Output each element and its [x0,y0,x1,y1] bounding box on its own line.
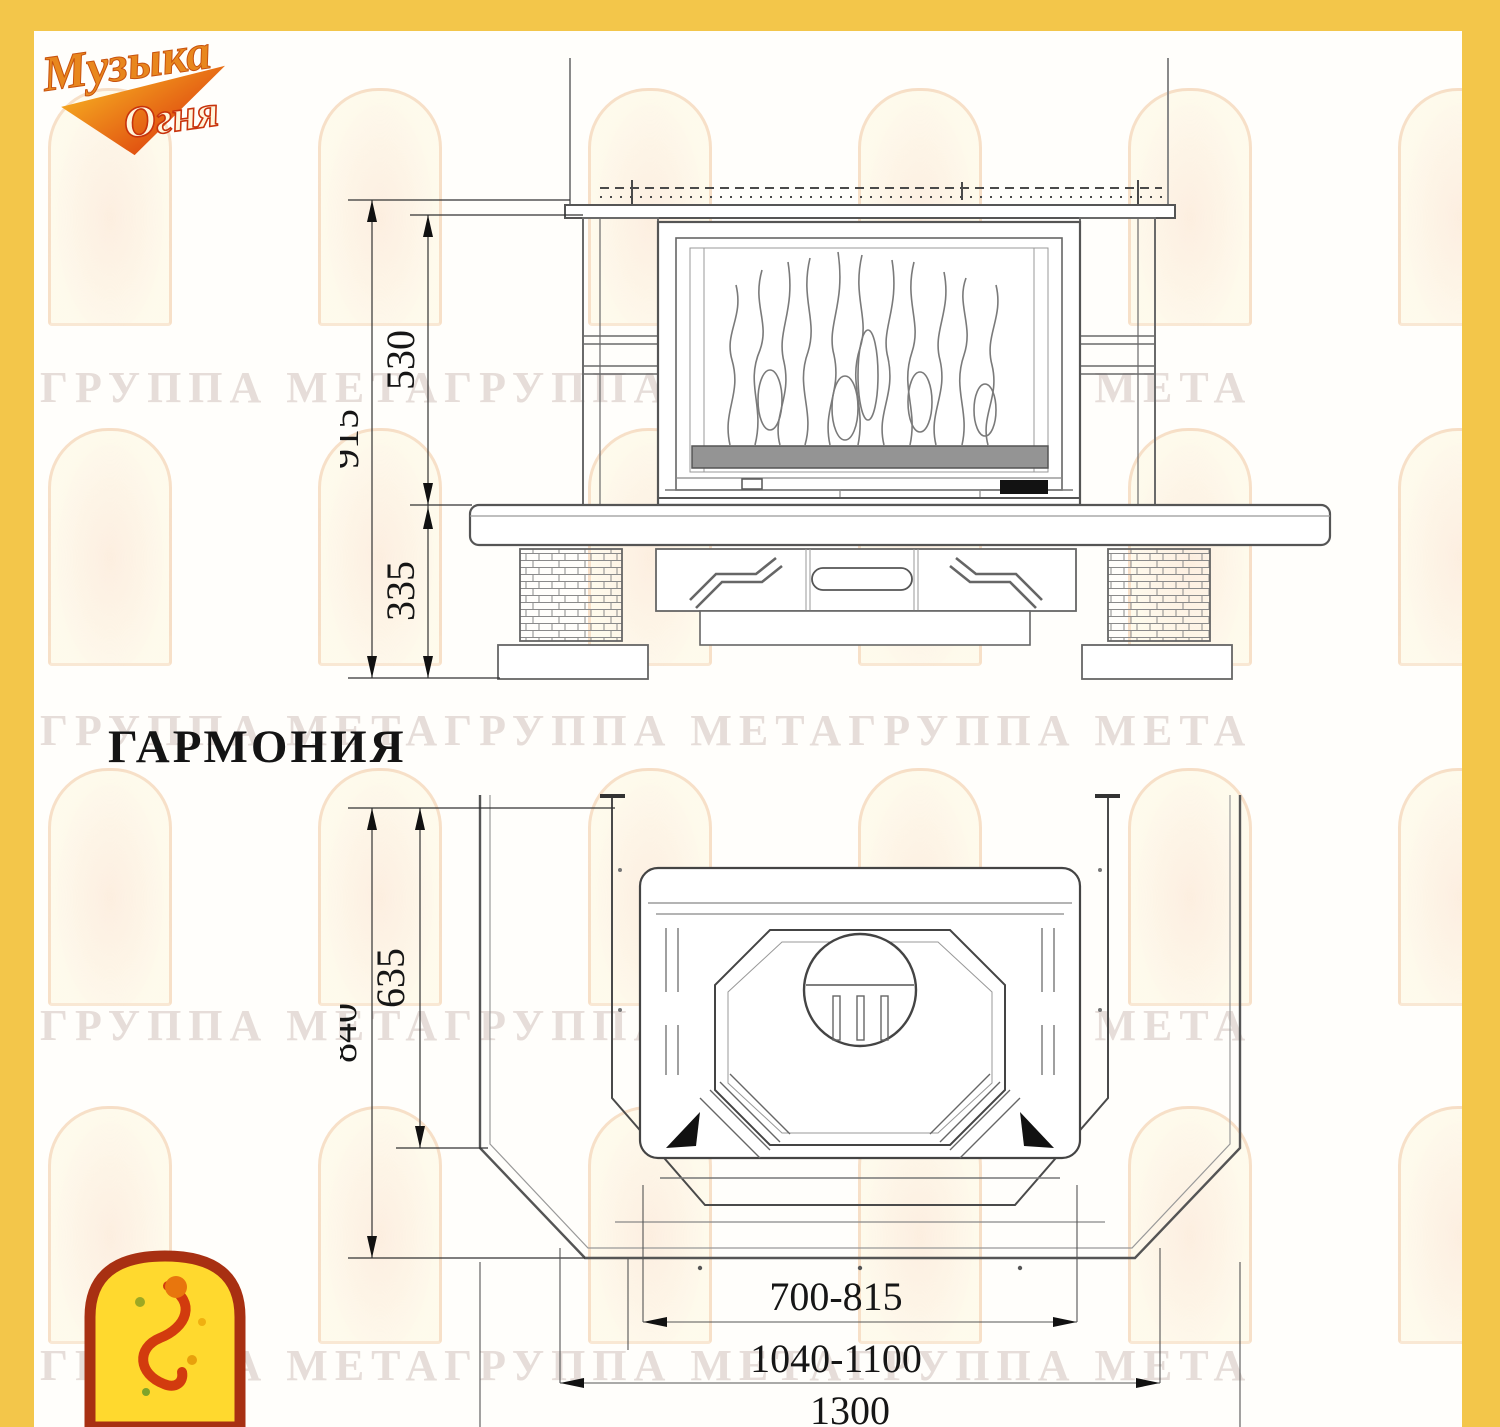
hearth-band [692,446,1048,468]
brick-block-right [1108,549,1210,641]
main-shelf [470,505,1330,545]
model-title: ГАРМОНИЯ [108,720,407,774]
dim-inner-depth: 635 [368,948,413,1008]
flue-collar-icon [804,934,916,1046]
mantel-shelf [565,205,1175,218]
dim-opening-width: 700-815 [769,1274,902,1319]
emblem-arch-icon [90,1256,240,1427]
left-yellow-bar [0,0,34,1427]
mantel-dashed-line [600,180,1162,204]
base-recess [700,611,1030,645]
watermark-arch [48,428,172,666]
watermark-arch [48,768,172,1006]
plinth-right [1082,645,1232,679]
dim-front-width: 1040-1100 [750,1336,922,1381]
plan-view-drawing: 840 635 700-815 1040-1100 1300 [340,780,1440,1427]
brick-block-left [520,549,622,641]
dim-total-width: 1300 [810,1388,890,1427]
right-pilaster [1080,218,1155,505]
chimney-breast [570,58,1168,205]
plan-width-dimensions: 700-815 1040-1100 1300 [480,1185,1240,1427]
base-center-slot [812,568,912,590]
dim-total-height: 915 [340,409,367,469]
plan-stove [640,868,1080,1178]
dim-total-depth: 840 [340,1003,365,1063]
left-pilaster [583,218,658,505]
firebox [658,222,1080,505]
plinth-left [498,645,648,679]
door-handle [1000,480,1048,494]
dim-base-height: 335 [378,561,423,621]
right-yellow-bar [1462,0,1500,1427]
base-section [498,549,1232,679]
drawing-sheet: ГРУППА МЕТАГРУППА МЕТАГРУППА МЕТА ГРУППА… [0,0,1500,1427]
brand-logo: Музыка Огня [28,12,278,187]
plan-depth-dimensions: 840 635 [340,808,615,1258]
dim-firebox-height: 530 [378,330,423,390]
front-elevation-drawing: 915 530 335 [340,50,1360,700]
brand-emblem [70,1242,260,1427]
